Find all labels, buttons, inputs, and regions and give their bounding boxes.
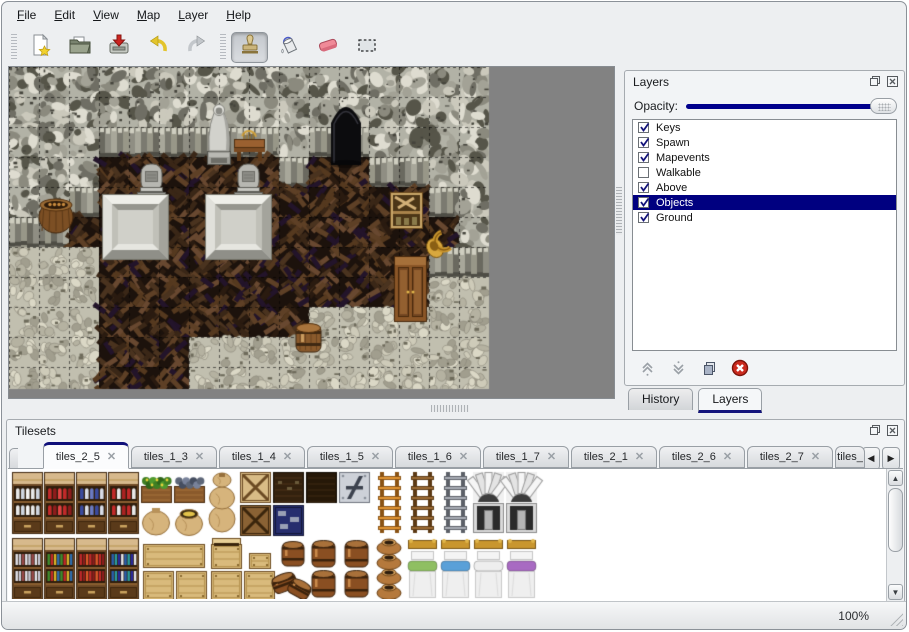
select-tool-icon <box>355 33 379 62</box>
fill-tool-button[interactable] <box>270 32 307 63</box>
menu-layer[interactable]: Layer <box>169 2 217 28</box>
scroll-down-icon[interactable]: ▼ <box>888 584 903 600</box>
eraser-tool-icon <box>316 33 340 62</box>
statusbar: 100% <box>2 601 906 629</box>
layer-row-objects[interactable]: Objects <box>633 195 896 210</box>
layer-name: Above <box>656 182 687 194</box>
map-canvas[interactable] <box>9 67 614 398</box>
dock-tab-bar: HistoryLayers <box>628 388 762 412</box>
app-window-stage: FileEditViewMapLayerHelp Layers Opacity: <box>0 0 909 632</box>
tileset-canvas[interactable] <box>10 471 870 599</box>
tileset-tab-tiles_1_3[interactable]: tiles_1_3✕ <box>131 446 217 468</box>
tileset-tab-tiles_2_7[interactable]: tiles_2_7✕ <box>747 446 833 468</box>
dock-tab-layers[interactable]: Layers <box>698 388 762 413</box>
checked-checkbox[interactable] <box>638 122 649 133</box>
layers-panel: Layers Opacity: KeysSpawnMapeventsWalkab… <box>624 70 905 386</box>
eraser-tool-button[interactable] <box>309 32 346 63</box>
menu-map[interactable]: Map <box>128 2 169 28</box>
fill-tool-icon <box>277 33 301 62</box>
menu-view[interactable]: View <box>84 2 128 28</box>
checked-checkbox[interactable] <box>638 182 649 193</box>
tileset-content: ▲ ▼ <box>8 468 903 601</box>
layer-row-mapevents[interactable]: Mapevents <box>633 150 896 165</box>
menu-help[interactable]: Help <box>217 2 260 28</box>
undo-icon <box>146 33 170 62</box>
tileset-tab-label: tiles_1_4 <box>232 451 276 463</box>
checked-checkbox[interactable] <box>638 212 649 223</box>
tilesets-panel: Tilesets ◀ ▶ tiles_2_5✕tiles_1_3✕tiles_1… <box>6 419 905 603</box>
layer-name: Spawn <box>656 137 690 149</box>
tileset-tab-bar: ◀ ▶ tiles_2_5✕tiles_1_3✕tiles_1_4✕tiles_… <box>7 440 904 469</box>
layer-row-spawn[interactable]: Spawn <box>633 135 896 150</box>
checked-checkbox[interactable] <box>638 197 649 208</box>
save-icon <box>107 33 131 62</box>
layer-row-keys[interactable]: Keys <box>633 120 896 135</box>
tileset-tab-tiles_1_4[interactable]: tiles_1_4✕ <box>219 446 305 468</box>
scrollbar-thumb[interactable] <box>888 488 903 552</box>
layer-name: Keys <box>656 122 680 134</box>
resize-grip[interactable] <box>886 609 903 626</box>
layers-panel-title: Layers <box>633 75 669 89</box>
menu-file[interactable]: File <box>8 2 45 28</box>
tileset-tab-label: tiles_1_5 <box>320 451 364 463</box>
redo-button[interactable] <box>178 32 215 63</box>
menu-edit[interactable]: Edit <box>45 2 84 28</box>
tileset-tab-label: tiles_2_1 <box>584 451 628 463</box>
tileset-tab-label: tiles_2_5 <box>56 451 100 463</box>
tileset-tab-label: tiles_2_6 <box>672 451 716 463</box>
new-file-button[interactable] <box>22 32 59 63</box>
close-tab-icon[interactable]: ✕ <box>723 451 732 463</box>
stamp-tool-button[interactable] <box>231 32 268 63</box>
opacity-label: Opacity: <box>634 99 678 113</box>
tileset-tab-label: tiles_1_6 <box>408 451 452 463</box>
tileset-tab-partial[interactable] <box>9 448 18 469</box>
tileset-scrollbar[interactable]: ▲ ▼ <box>886 469 903 601</box>
close-tab-icon[interactable]: ✕ <box>283 451 292 463</box>
map-editor-window: FileEditViewMapLayerHelp Layers Opacity: <box>1 1 907 630</box>
undo-button[interactable] <box>139 32 176 63</box>
checked-checkbox[interactable] <box>638 152 649 163</box>
layer-row-ground[interactable]: Ground <box>633 210 896 225</box>
tileset-tab-tiles_2_1[interactable]: tiles_2_1✕ <box>571 446 657 468</box>
float-panel-icon[interactable] <box>869 75 882 88</box>
tileset-tab-tiles_[interactable]: tiles_ <box>835 446 865 468</box>
scroll-up-icon[interactable]: ▲ <box>888 470 903 486</box>
layer-list: KeysSpawnMapeventsWalkableAboveObjectsGr… <box>632 119 897 351</box>
new-file-icon <box>29 33 53 62</box>
layer-row-above[interactable]: Above <box>633 180 896 195</box>
unchecked-checkbox[interactable] <box>638 167 649 178</box>
open-file-button[interactable] <box>61 32 98 63</box>
move-layer-up-button[interactable] <box>638 359 656 377</box>
close-tilesets-icon[interactable] <box>886 424 899 437</box>
tileset-tab-tiles_1_5[interactable]: tiles_1_5✕ <box>307 446 393 468</box>
close-tab-icon[interactable]: ✕ <box>635 451 644 463</box>
close-tab-icon[interactable]: ✕ <box>547 451 556 463</box>
toolbar <box>2 28 906 66</box>
tilesets-panel-title: Tilesets <box>15 424 56 438</box>
opacity-slider-handle[interactable] <box>870 98 897 114</box>
tileset-tab-label: tiles_2_7 <box>760 451 804 463</box>
stamp-tool-icon <box>238 33 262 62</box>
tileset-tab-label: tiles_1_7 <box>496 451 540 463</box>
layer-name: Ground <box>656 212 693 224</box>
select-tool-button[interactable] <box>348 32 385 63</box>
zoom-level: 100% <box>838 609 869 623</box>
layer-name: Mapevents <box>656 152 710 164</box>
close-tab-icon[interactable]: ✕ <box>195 451 204 463</box>
checked-checkbox[interactable] <box>638 137 649 148</box>
delete-layer-button[interactable] <box>731 359 749 377</box>
tileset-tab-tiles_2_5[interactable]: tiles_2_5✕ <box>43 442 129 469</box>
opacity-slider[interactable] <box>686 104 895 109</box>
close-tab-icon[interactable]: ✕ <box>107 451 116 463</box>
close-tab-icon[interactable]: ✕ <box>811 451 820 463</box>
save-file-button[interactable] <box>100 32 137 63</box>
close-tab-icon[interactable]: ✕ <box>371 451 380 463</box>
toolbar-group-handle[interactable] <box>220 34 226 60</box>
horizontal-splitter-handle[interactable] <box>431 405 469 412</box>
float-tilesets-icon[interactable] <box>869 424 882 437</box>
close-panel-icon[interactable] <box>886 75 899 88</box>
map-viewport <box>8 66 615 399</box>
dock-tab-history[interactable]: History <box>628 388 693 410</box>
layer-row-walkable[interactable]: Walkable <box>633 165 896 180</box>
tab-scroll-right-button[interactable]: ▶ <box>882 447 900 470</box>
layer-name: Objects <box>656 197 693 209</box>
menubar: FileEditViewMapLayerHelp <box>2 2 906 28</box>
layer-actions <box>625 356 904 380</box>
tileset-tab-label: tiles_ <box>837 451 863 463</box>
vertical-splitter-handle[interactable] <box>616 187 622 235</box>
tileset-tab-tiles_1_7[interactable]: tiles_1_7✕ <box>483 446 569 468</box>
redo-icon <box>185 33 209 62</box>
duplicate-layer-button[interactable] <box>700 359 718 377</box>
toolbar-drag-handle[interactable] <box>11 34 17 60</box>
tileset-tab-label: tiles_1_3 <box>144 451 188 463</box>
tileset-tab-tiles_2_6[interactable]: tiles_2_6✕ <box>659 446 745 468</box>
layer-name: Walkable <box>656 167 701 179</box>
tileset-tab-tiles_1_6[interactable]: tiles_1_6✕ <box>395 446 481 468</box>
open-folder-icon <box>68 33 92 62</box>
close-tab-icon[interactable]: ✕ <box>459 451 468 463</box>
move-layer-down-button[interactable] <box>669 359 687 377</box>
